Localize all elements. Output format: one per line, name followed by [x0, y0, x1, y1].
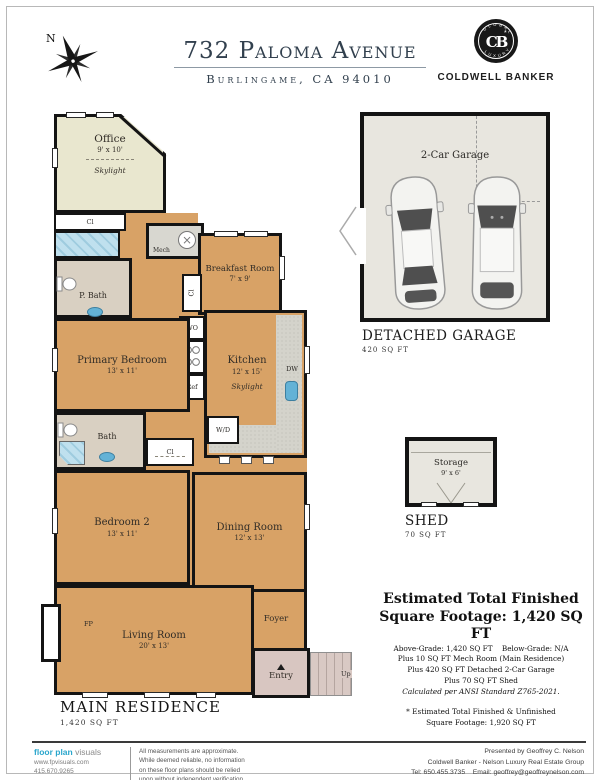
- garage-door-opening: [359, 208, 366, 264]
- main-residence-plan: Office 9' x 10' Skylight Cl P. Bath × Me…: [52, 108, 364, 700]
- room-breakfast: Breakfast Room 7' x 9': [198, 233, 282, 315]
- washer-dryer: W/D: [207, 416, 239, 444]
- stool: [263, 456, 274, 464]
- cb-global-luxury-icon: GLOBAL LUXURY CB *: [473, 18, 519, 64]
- closet-bath: Cl: [146, 438, 194, 466]
- summary-garage: Plus 420 SQ FT Detached 2-Car Garage: [372, 665, 590, 676]
- stool: [219, 456, 230, 464]
- svg-text:*: *: [504, 30, 507, 37]
- sink-icon: [87, 307, 103, 317]
- closet-hall: Cl: [182, 274, 202, 312]
- page-title: 732 Paloma Avenue: [150, 38, 450, 64]
- presented-by: Presented by Geoffrey C. Nelson: [411, 747, 584, 758]
- agent-contact: Tel: 650.455.3735 Email: geoffrey@geoffr…: [411, 768, 584, 779]
- car-icon: [381, 172, 452, 314]
- footer-divider: [130, 747, 131, 780]
- garage-door-arrow-icon: [336, 205, 358, 257]
- window: [421, 502, 437, 507]
- title-underline: [174, 67, 426, 68]
- footer-website: www.fpvisuals.com: [34, 759, 122, 766]
- room-dining: Dining Room 12' x 13': [192, 472, 307, 592]
- agent-company: Coldwell Banker - Nelson Luxury Real Est…: [411, 758, 584, 769]
- logo-visuals-text: visuals: [75, 747, 101, 757]
- footer-agent-info: Presented by Geoffrey C. Nelson Coldwell…: [411, 747, 584, 780]
- summary-title-line1: Estimated Total Finished: [372, 591, 590, 609]
- shed-caption: SHED 70 SQ FT: [405, 513, 449, 539]
- summary-title-line2: Square Footage: 1,420 SQ FT: [372, 609, 590, 644]
- room-foyer: Foyer: [248, 592, 307, 648]
- steps-up-label: Up: [340, 670, 352, 678]
- room-primary-bedroom: Primary Bedroom 13' x 11': [54, 318, 190, 412]
- water-heater-icon: ×: [178, 231, 196, 249]
- floor-plan-sheet: N 732 Paloma Avenue Burlingame, CA 94010…: [0, 0, 600, 780]
- corner-shower-icon: [59, 441, 85, 465]
- sink-icon: [99, 452, 115, 462]
- window: [96, 112, 114, 118]
- footer-phone: 415.670.9265: [34, 768, 122, 775]
- dishwasher-label: DW: [286, 365, 298, 373]
- summary-mech: Plus 10 SQ FT Mech Room (Main Residence): [372, 654, 590, 665]
- compass-north-label: N: [46, 32, 56, 45]
- window: [52, 148, 58, 168]
- room-living: Living Room 20' x 13': [54, 585, 254, 695]
- footer-disclaimer: All measurements are approximate. While …: [139, 747, 245, 780]
- shed-plan: Storage 9' x 6': [405, 437, 497, 507]
- room-bath: Bath: [54, 412, 146, 470]
- square-footage-summary: Estimated Total Finished Square Footage:…: [372, 591, 590, 729]
- footer-bar: floor plan visuals www.fpvisuals.com 415…: [32, 741, 586, 780]
- garage-plan: 2-Car Garage: [360, 112, 550, 322]
- coldwell-banker-logo: GLOBAL LUXURY CB * COLDWELL BANKER: [426, 18, 566, 83]
- window: [279, 256, 285, 280]
- fpvisuals-logo: floor plan visuals www.fpvisuals.com 415…: [34, 747, 122, 780]
- window: [304, 504, 310, 530]
- garage-caption: DETACHED GARAGE 420 SQ FT: [362, 328, 516, 354]
- page-subtitle: Burlingame, CA 94010: [150, 72, 450, 86]
- room-entry: Entry: [252, 648, 310, 698]
- shed-dims: 9' x 6': [409, 469, 493, 477]
- summary-footnote1: * Estimated Total Finished & Unfinished: [372, 707, 590, 718]
- entry-arrow-icon: [277, 664, 285, 670]
- kitchen-sink-icon: [285, 381, 298, 401]
- shed-interior-line: [411, 452, 491, 453]
- fireplace: [41, 604, 61, 662]
- skylight-dash: [86, 159, 134, 160]
- window: [214, 231, 238, 237]
- window: [52, 348, 58, 372]
- brand-name: COLDWELL BANKER: [426, 72, 566, 83]
- shed-room-label: Storage: [409, 458, 493, 468]
- toilet-icon: [58, 423, 80, 438]
- room-office: Office 9' x 10' Skylight: [54, 114, 166, 213]
- main-residence-caption: MAIN RESIDENCE 1,420 SQ FT: [60, 698, 221, 727]
- shed-door-icon: [431, 481, 471, 503]
- window: [304, 346, 310, 374]
- fireplace-label: FP: [84, 620, 93, 628]
- shower-primary: [54, 231, 120, 258]
- room-mech: × Mech: [146, 223, 204, 259]
- toilet-icon: [57, 277, 79, 292]
- closet-office: Cl: [54, 213, 126, 231]
- car-icon: [466, 174, 528, 312]
- window: [52, 508, 58, 534]
- logo-floorplan-text: floor plan: [34, 747, 73, 757]
- room-bedroom2: Bedroom 2 13' x 11': [54, 470, 190, 585]
- room-primary-bath: P. Bath: [54, 258, 132, 318]
- window: [463, 502, 479, 507]
- summary-grades: Above-Grade: 1,420 SQ FT Below-Grade: N/…: [372, 644, 590, 655]
- summary-footnote2: Square Footage: 1,920 SQ FT: [372, 718, 590, 729]
- stool: [241, 456, 252, 464]
- garage-room-label: 2-Car Garage: [364, 150, 546, 161]
- window: [244, 231, 268, 237]
- window: [66, 112, 86, 118]
- summary-ansi: Calculated per ANSI Standard Z765-2021.: [372, 687, 590, 698]
- summary-shed: Plus 70 SQ FT Shed: [372, 676, 590, 687]
